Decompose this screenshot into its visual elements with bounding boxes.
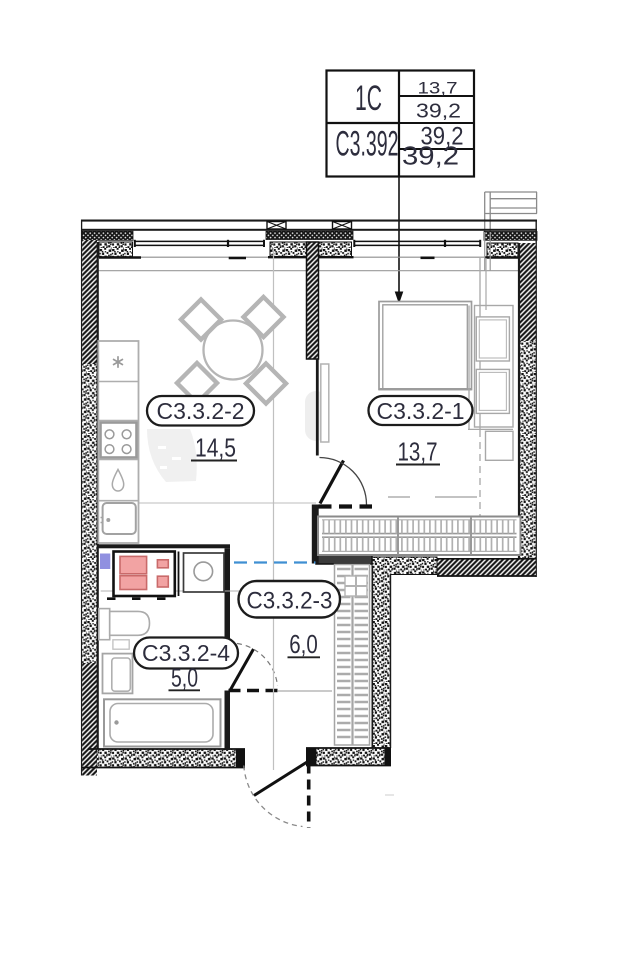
svg-text:39,2: 39,2	[402, 141, 459, 171]
svg-text:С3.3.2-3: С3.3.2-3	[247, 588, 333, 615]
svg-text:13,7: 13,7	[418, 79, 458, 98]
svg-text:14,5: 14,5	[195, 433, 236, 463]
svg-text:С3.392: С3.392	[336, 125, 399, 164]
svg-text:С3.3.2-2: С3.3.2-2	[157, 398, 245, 424]
svg-text:39,2: 39,2	[416, 101, 461, 123]
svg-text:1С: 1С	[355, 79, 382, 118]
svg-text:5,0: 5,0	[171, 663, 198, 693]
svg-text:С3.3.2-1: С3.3.2-1	[377, 398, 465, 424]
svg-text:6,0: 6,0	[289, 629, 318, 659]
svg-text:13,7: 13,7	[398, 437, 438, 467]
